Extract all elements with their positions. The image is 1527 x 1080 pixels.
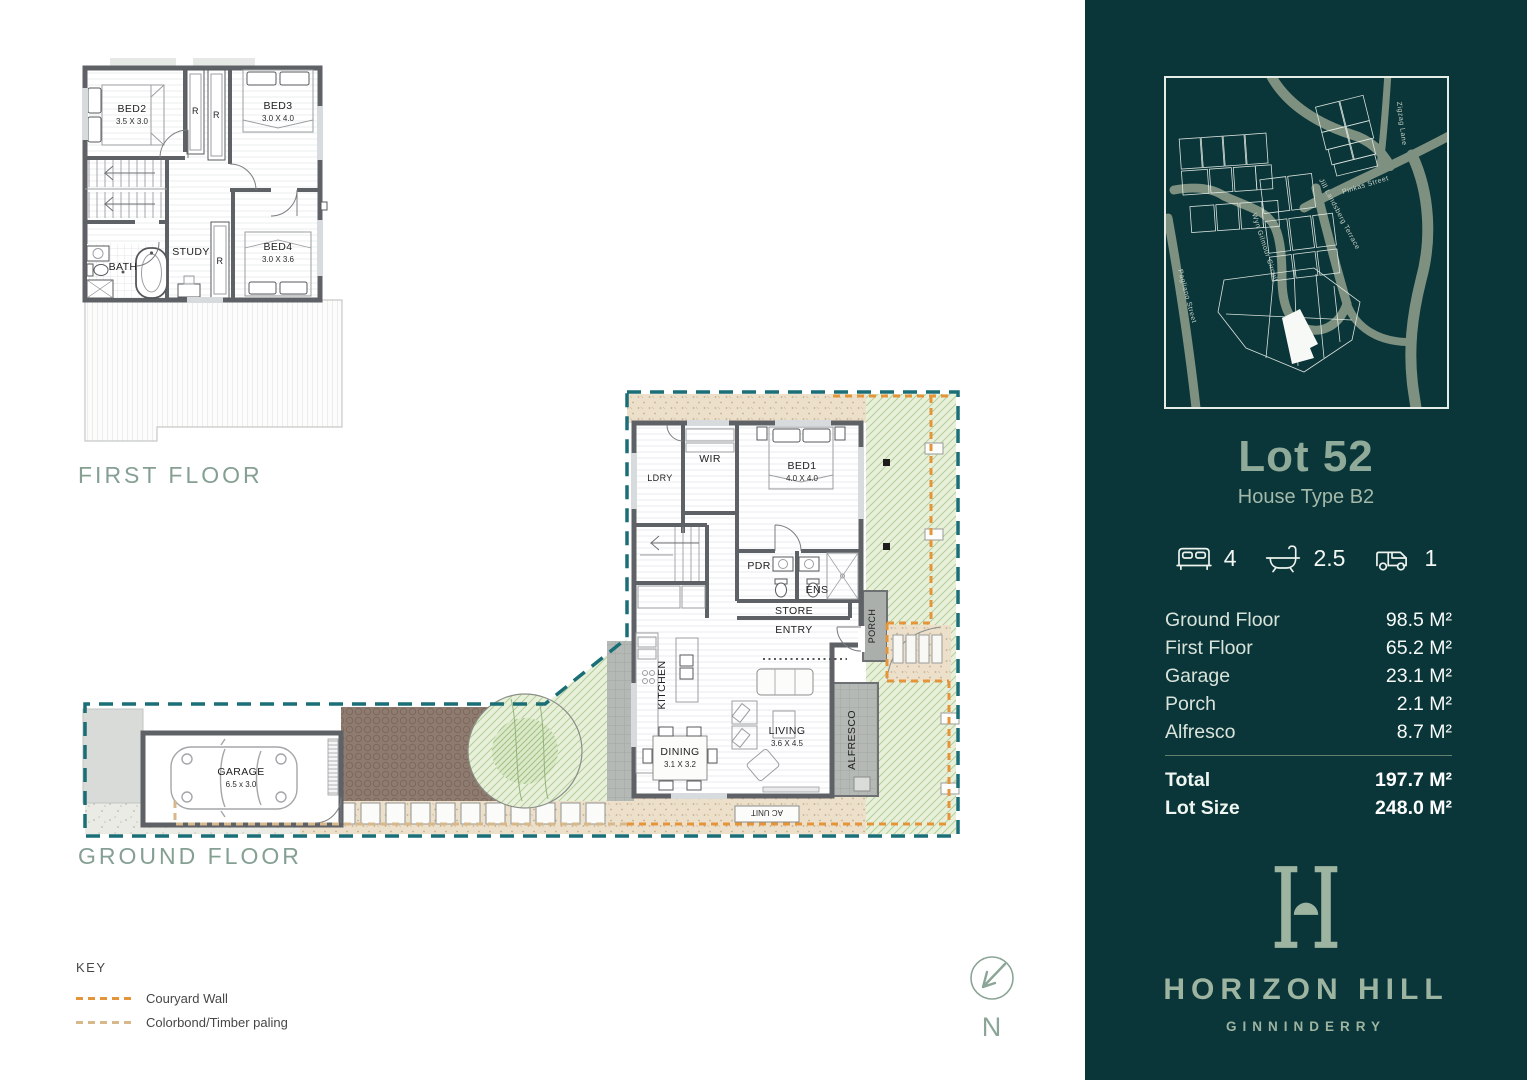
key-legend: KEY Couryard Wall Colorbond/Timber palin… (76, 960, 288, 1030)
room-label-wir: WIR (699, 453, 721, 465)
room-dims-garage: 6.5 x 3.0 (226, 780, 257, 789)
feature-cars: 1 (1371, 542, 1437, 574)
room-label-garage: GARAGE (217, 766, 264, 778)
area-value: 23.1 M² (1386, 662, 1452, 690)
room-label-ldry: LDRY (647, 473, 672, 483)
room-dims-bed4: 3.0 X 3.6 (262, 255, 295, 264)
room-label-dining: DINING (660, 746, 699, 758)
room-label-bed4: BED4 (263, 241, 292, 253)
horizon-hill-logo-icon (1266, 862, 1346, 952)
locality-map: Pagliano Street Wyn Gilmour Circuit Jill… (1164, 76, 1449, 409)
room-label-bed1: BED1 (787, 460, 816, 472)
key-item-courtyard: Couryard Wall (76, 991, 288, 1006)
eave-mark (110, 58, 176, 66)
area-row-ground-floor: Ground Floor 98.5 M² (1165, 606, 1452, 634)
brand-subtitle: GINNINDERRY (1085, 1019, 1527, 1034)
key-item-label: Couryard Wall (146, 991, 228, 1006)
courtyard-wall-swatch (76, 997, 134, 1000)
room-label-robe1: R (192, 106, 199, 116)
room-label-store: STORE (775, 605, 813, 617)
ground-floor-title: GROUND FLOOR (78, 843, 302, 870)
room-label-ens: ENS (806, 584, 829, 596)
tree (468, 694, 582, 808)
area-label: Porch (1165, 690, 1216, 718)
area-table: Ground Floor 98.5 M² First Floor 65.2 M²… (1165, 606, 1452, 822)
lot-size-value: 248.0 M² (1375, 794, 1452, 822)
total-label: Total (1165, 766, 1210, 794)
area-row-alfresco: Alfresco 8.7 M² (1165, 718, 1452, 746)
locality-map-svg: Pagliano Street Wyn Gilmour Circuit Jill… (1166, 78, 1447, 407)
side-path (607, 641, 634, 801)
garage: GARAGE 6.5 x 3.0 (143, 733, 341, 825)
sidebar: Pagliano Street Wyn Gilmour Circuit Jill… (1085, 0, 1527, 1080)
beds-count: 4 (1224, 545, 1237, 572)
area-divider (1165, 755, 1452, 756)
driveway (83, 709, 143, 803)
key-item-label: Colorbond/Timber paling (146, 1015, 288, 1030)
lot-title: Lot 52 (1085, 432, 1527, 482)
key-item-paling: Colorbond/Timber paling (76, 1015, 288, 1030)
area-row-first-floor: First Floor 65.2 M² (1165, 634, 1452, 662)
area-value: 98.5 M² (1386, 606, 1452, 634)
room-label-bath: BATH (109, 261, 138, 273)
paling-swatch (76, 1021, 134, 1024)
total-value: 197.7 M² (1375, 766, 1452, 794)
room-label-robe2: R (213, 110, 220, 120)
room-label-bed2: BED2 (117, 103, 146, 115)
room-label-robe3: R (217, 256, 224, 266)
lot-size-row: Lot Size 248.0 M² (1165, 794, 1452, 822)
area-label: Garage (1165, 662, 1230, 690)
north-arrow-icon (964, 953, 1020, 1005)
area-label: First Floor (1165, 634, 1253, 662)
side-strip-top (627, 394, 866, 423)
area-row-porch: Porch 2.1 M² (1165, 690, 1452, 718)
room-dims-bed1: 4.0 X 4.0 (786, 474, 819, 483)
room-label-kitchen: KITCHEN (656, 661, 668, 710)
cars-count: 1 (1424, 545, 1437, 572)
key-title: KEY (76, 960, 288, 975)
feature-row: 4 2.5 1 (1085, 542, 1527, 574)
ac-unit: AC UNIT (735, 806, 799, 822)
room-dims-bed3: 3.0 X 4.0 (262, 114, 295, 123)
room-label-alfresco: ALFRESCO (846, 710, 858, 770)
area-value: 8.7 M² (1397, 718, 1452, 746)
room-dims-dining: 3.1 X 3.2 (664, 760, 697, 769)
car-icon (1371, 542, 1413, 574)
feature-baths: 2.5 (1263, 542, 1346, 574)
bed-icon (1175, 543, 1213, 573)
room-dims-bed2: 3.5 X 3.0 (116, 117, 149, 126)
map-highlighted-lot (1282, 309, 1318, 364)
area-row-garage: Garage 23.1 M² (1165, 662, 1452, 690)
house-type: House Type B2 (1085, 486, 1527, 509)
room-label-pdr: PDR (747, 560, 770, 572)
feature-beds: 4 (1175, 543, 1237, 573)
area-label: Ground Floor (1165, 606, 1280, 634)
area-value: 65.2 M² (1386, 634, 1452, 662)
alfresco-step (854, 777, 870, 791)
room-dims-living: 3.6 X 4.5 (771, 739, 804, 748)
north-indicator: N (962, 953, 1022, 1043)
brand-block: HORIZON HILL GINNINDERRY (1085, 862, 1527, 1034)
eave-mark (193, 58, 255, 66)
svg-text:AC UNIT: AC UNIT (751, 808, 783, 817)
lot-size-label: Lot Size (1165, 794, 1240, 822)
room-label-porch: PORCH (867, 609, 877, 644)
baths-count: 2.5 (1314, 545, 1346, 572)
floorplan-page: BED2 3.5 X 3.0 BED3 3.0 X 4.0 BED4 3.0 X… (0, 0, 1527, 1080)
room-label-bed3: BED3 (263, 100, 292, 112)
ground-floor-plan: GARAGE 6.5 x 3.0 (75, 383, 980, 853)
room-label-entry: ENTRY (775, 624, 812, 636)
gate-pavers (887, 625, 951, 681)
bath-icon (1263, 542, 1303, 574)
room-label-study: STUDY (172, 246, 210, 258)
room-label-living: LIVING (769, 725, 806, 737)
brand-name: HORIZON HILL (1085, 973, 1527, 1007)
street-zigzag: Zigzag Lane (1395, 101, 1407, 146)
area-value: 2.1 M² (1397, 690, 1452, 718)
total-row: Total 197.7 M² (1165, 766, 1452, 794)
north-label: N (962, 1012, 1022, 1043)
area-label: Alfresco (1165, 718, 1235, 746)
